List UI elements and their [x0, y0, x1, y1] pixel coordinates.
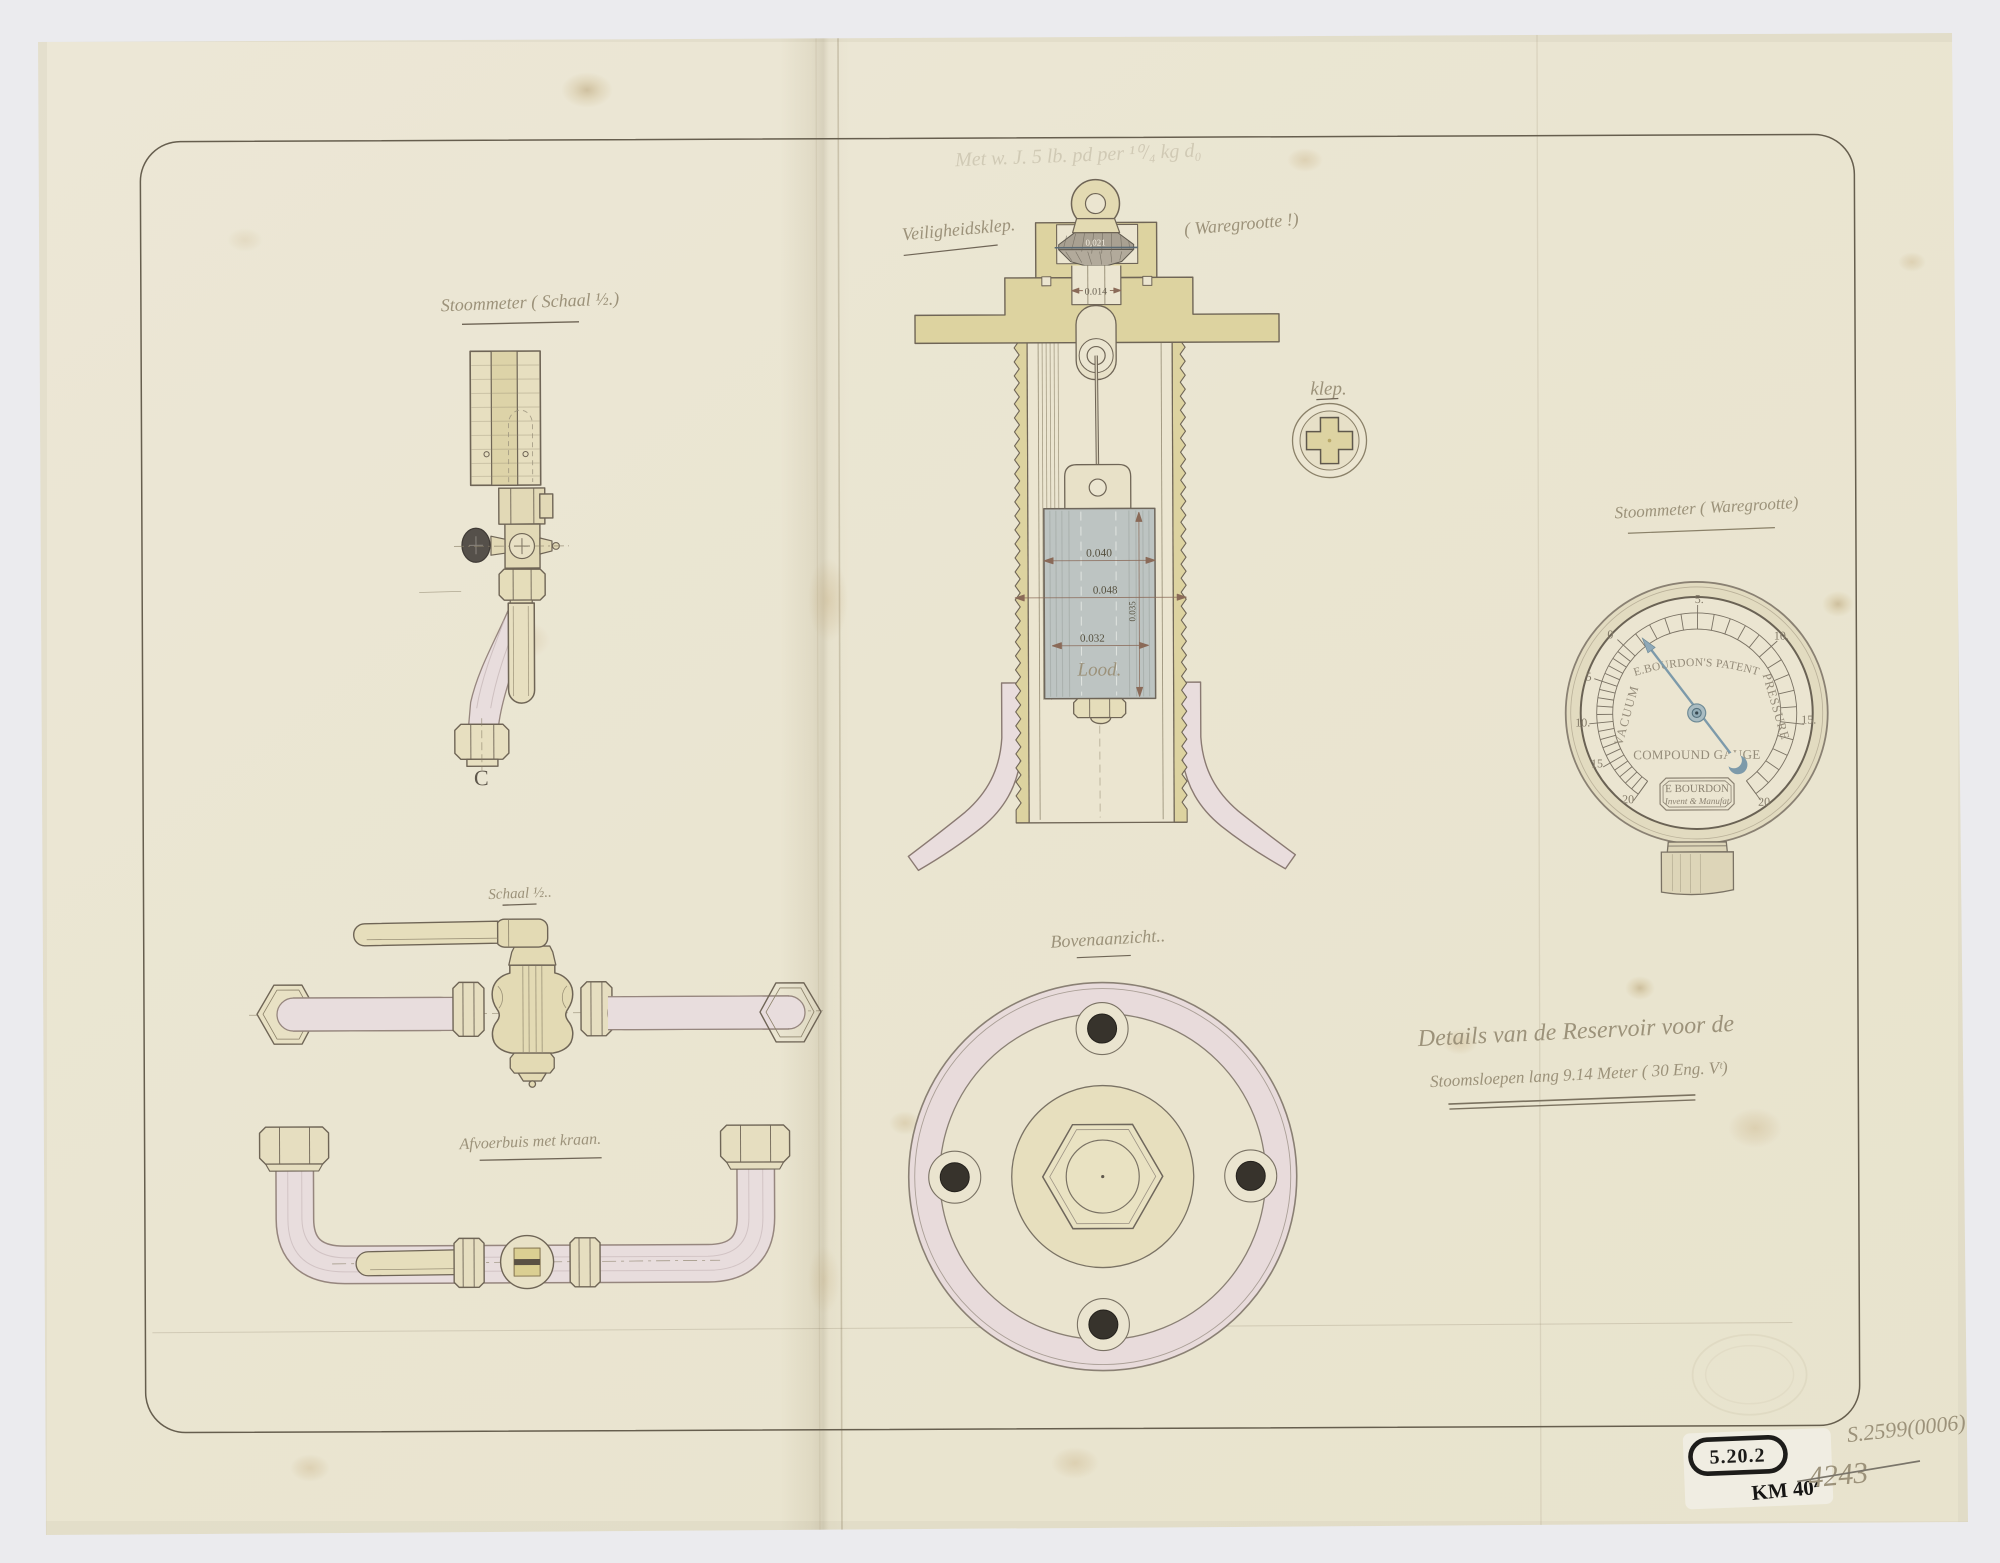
svg-text:20: 20 — [1758, 795, 1770, 809]
svg-text:Schaal ½..: Schaal ½.. — [488, 885, 552, 903]
svg-text:0.048: 0.048 — [1093, 584, 1118, 596]
svg-text:E BOURDON: E BOURDON — [1665, 783, 1729, 795]
svg-text:klep.: klep. — [1310, 378, 1346, 399]
svg-text:10.: 10. — [1774, 629, 1789, 643]
svg-text:15.: 15. — [1801, 712, 1816, 726]
svg-text:0,021: 0,021 — [1086, 238, 1106, 248]
svg-text:10.: 10. — [1575, 715, 1590, 729]
svg-text:Lood.: Lood. — [1076, 659, 1121, 680]
svg-text:5.: 5. — [1695, 592, 1704, 606]
svg-text:0.032: 0.032 — [1080, 633, 1105, 645]
svg-text:C: C — [474, 765, 489, 790]
svg-text:0.014: 0.014 — [1085, 287, 1108, 298]
svg-text:15: 15 — [1591, 756, 1603, 770]
svg-text:5.20.2: 5.20.2 — [1709, 1444, 1766, 1468]
svg-text:5: 5 — [1586, 669, 1592, 683]
svg-text:Invent & Manufat: Invent & Manufat — [1664, 796, 1730, 806]
svg-text:0.035: 0.035 — [1127, 601, 1137, 622]
svg-text:0: 0 — [1607, 627, 1613, 641]
svg-text:0.040: 0.040 — [1086, 548, 1112, 560]
svg-text:20: 20 — [1622, 792, 1634, 806]
